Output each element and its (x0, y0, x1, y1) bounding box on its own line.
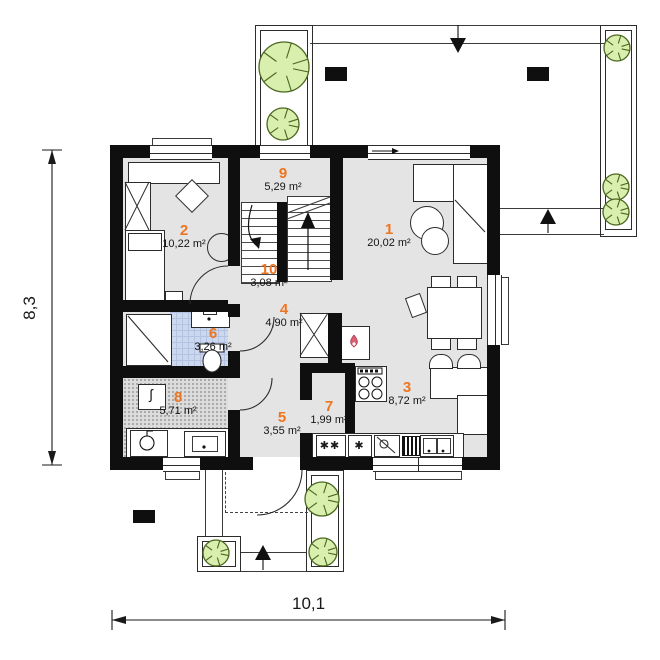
terrace-planter-left-inner (260, 30, 308, 150)
dimension-height-label: 8,3 (20, 296, 40, 320)
bar-stool (429, 354, 453, 369)
entrance-door-opening (253, 457, 300, 470)
room-label-9: 9 5,29 m² (264, 166, 301, 194)
wall (110, 145, 123, 470)
utility-sink-bowl (192, 436, 218, 452)
wall (328, 313, 342, 363)
porch-post (133, 510, 155, 523)
dimension-width-label: 10,1 (292, 594, 325, 614)
wall (487, 345, 500, 470)
wall (200, 457, 253, 470)
wall (123, 300, 228, 312)
room-label-6: 6 3,26 m² (194, 326, 231, 354)
room-label-10: 10 3,08 m² (250, 262, 287, 290)
room-label-1: 1 20,02 m² (367, 222, 410, 250)
kitchen-cabinet (374, 435, 400, 457)
terrace-edge (310, 25, 608, 44)
window (163, 457, 200, 472)
dishwasher (402, 436, 420, 456)
room-label-5: 5 3,55 m² (263, 410, 300, 438)
wall (212, 145, 260, 158)
room-label-4: 4 4,90 m² (265, 302, 302, 330)
hall-closet (300, 313, 330, 358)
room-label-8: 8 5,71 m² (159, 390, 196, 418)
stairs-right-flight (287, 196, 332, 282)
wall (110, 457, 163, 470)
terrace-planter-right-inner (605, 30, 632, 230)
wall (330, 158, 343, 280)
pillow (128, 233, 162, 251)
wall (462, 457, 500, 470)
kitchen-sink-bowl (437, 438, 451, 454)
wall (310, 145, 368, 158)
wall (300, 457, 373, 470)
desk (128, 162, 220, 184)
room-label-3: 3 8,72 m² (388, 380, 425, 408)
terrace-post (325, 67, 347, 81)
room-label-2: 2 10,22 m² (162, 223, 205, 251)
window (150, 145, 212, 160)
dimension-line-vertical (42, 150, 62, 465)
wardrobe (125, 182, 151, 232)
washing-machine (130, 430, 168, 457)
terrace-step-band (500, 208, 604, 235)
fireplace (340, 326, 370, 360)
coffee-table (421, 227, 449, 255)
laundry-single-icon: ✱ (348, 439, 370, 452)
terrace-post (527, 67, 549, 81)
wall (487, 145, 500, 275)
wall (300, 433, 312, 457)
wall (123, 366, 228, 378)
porch-roof-outline (225, 472, 308, 513)
porch-walkway (235, 552, 308, 572)
wall (228, 158, 240, 266)
kitchen-hob-unit (355, 366, 387, 402)
wall (228, 304, 240, 317)
floor-plan-canvas: ʃ ✱✱ ✱ (0, 0, 660, 660)
room-label-7: 7 1,99 m² (310, 399, 347, 427)
wall (228, 351, 240, 378)
sliding-terrace-door (368, 145, 470, 160)
porch-colonnade (205, 470, 223, 538)
wall (312, 363, 345, 373)
kitchen-window (373, 457, 462, 472)
kitchen-counter (457, 395, 489, 435)
sofa (453, 164, 489, 264)
shower (126, 314, 172, 366)
window (260, 145, 310, 160)
dining-table (427, 287, 482, 339)
laundry-double-icon: ✱✱ (316, 439, 344, 452)
wall (300, 363, 312, 400)
kitchen-sink-bowl (423, 438, 437, 454)
window (487, 275, 502, 345)
porch-planter-right-inner (311, 475, 339, 567)
wall (228, 410, 240, 457)
porch-planter-left-inner (202, 541, 236, 567)
bar-stool (457, 354, 481, 369)
